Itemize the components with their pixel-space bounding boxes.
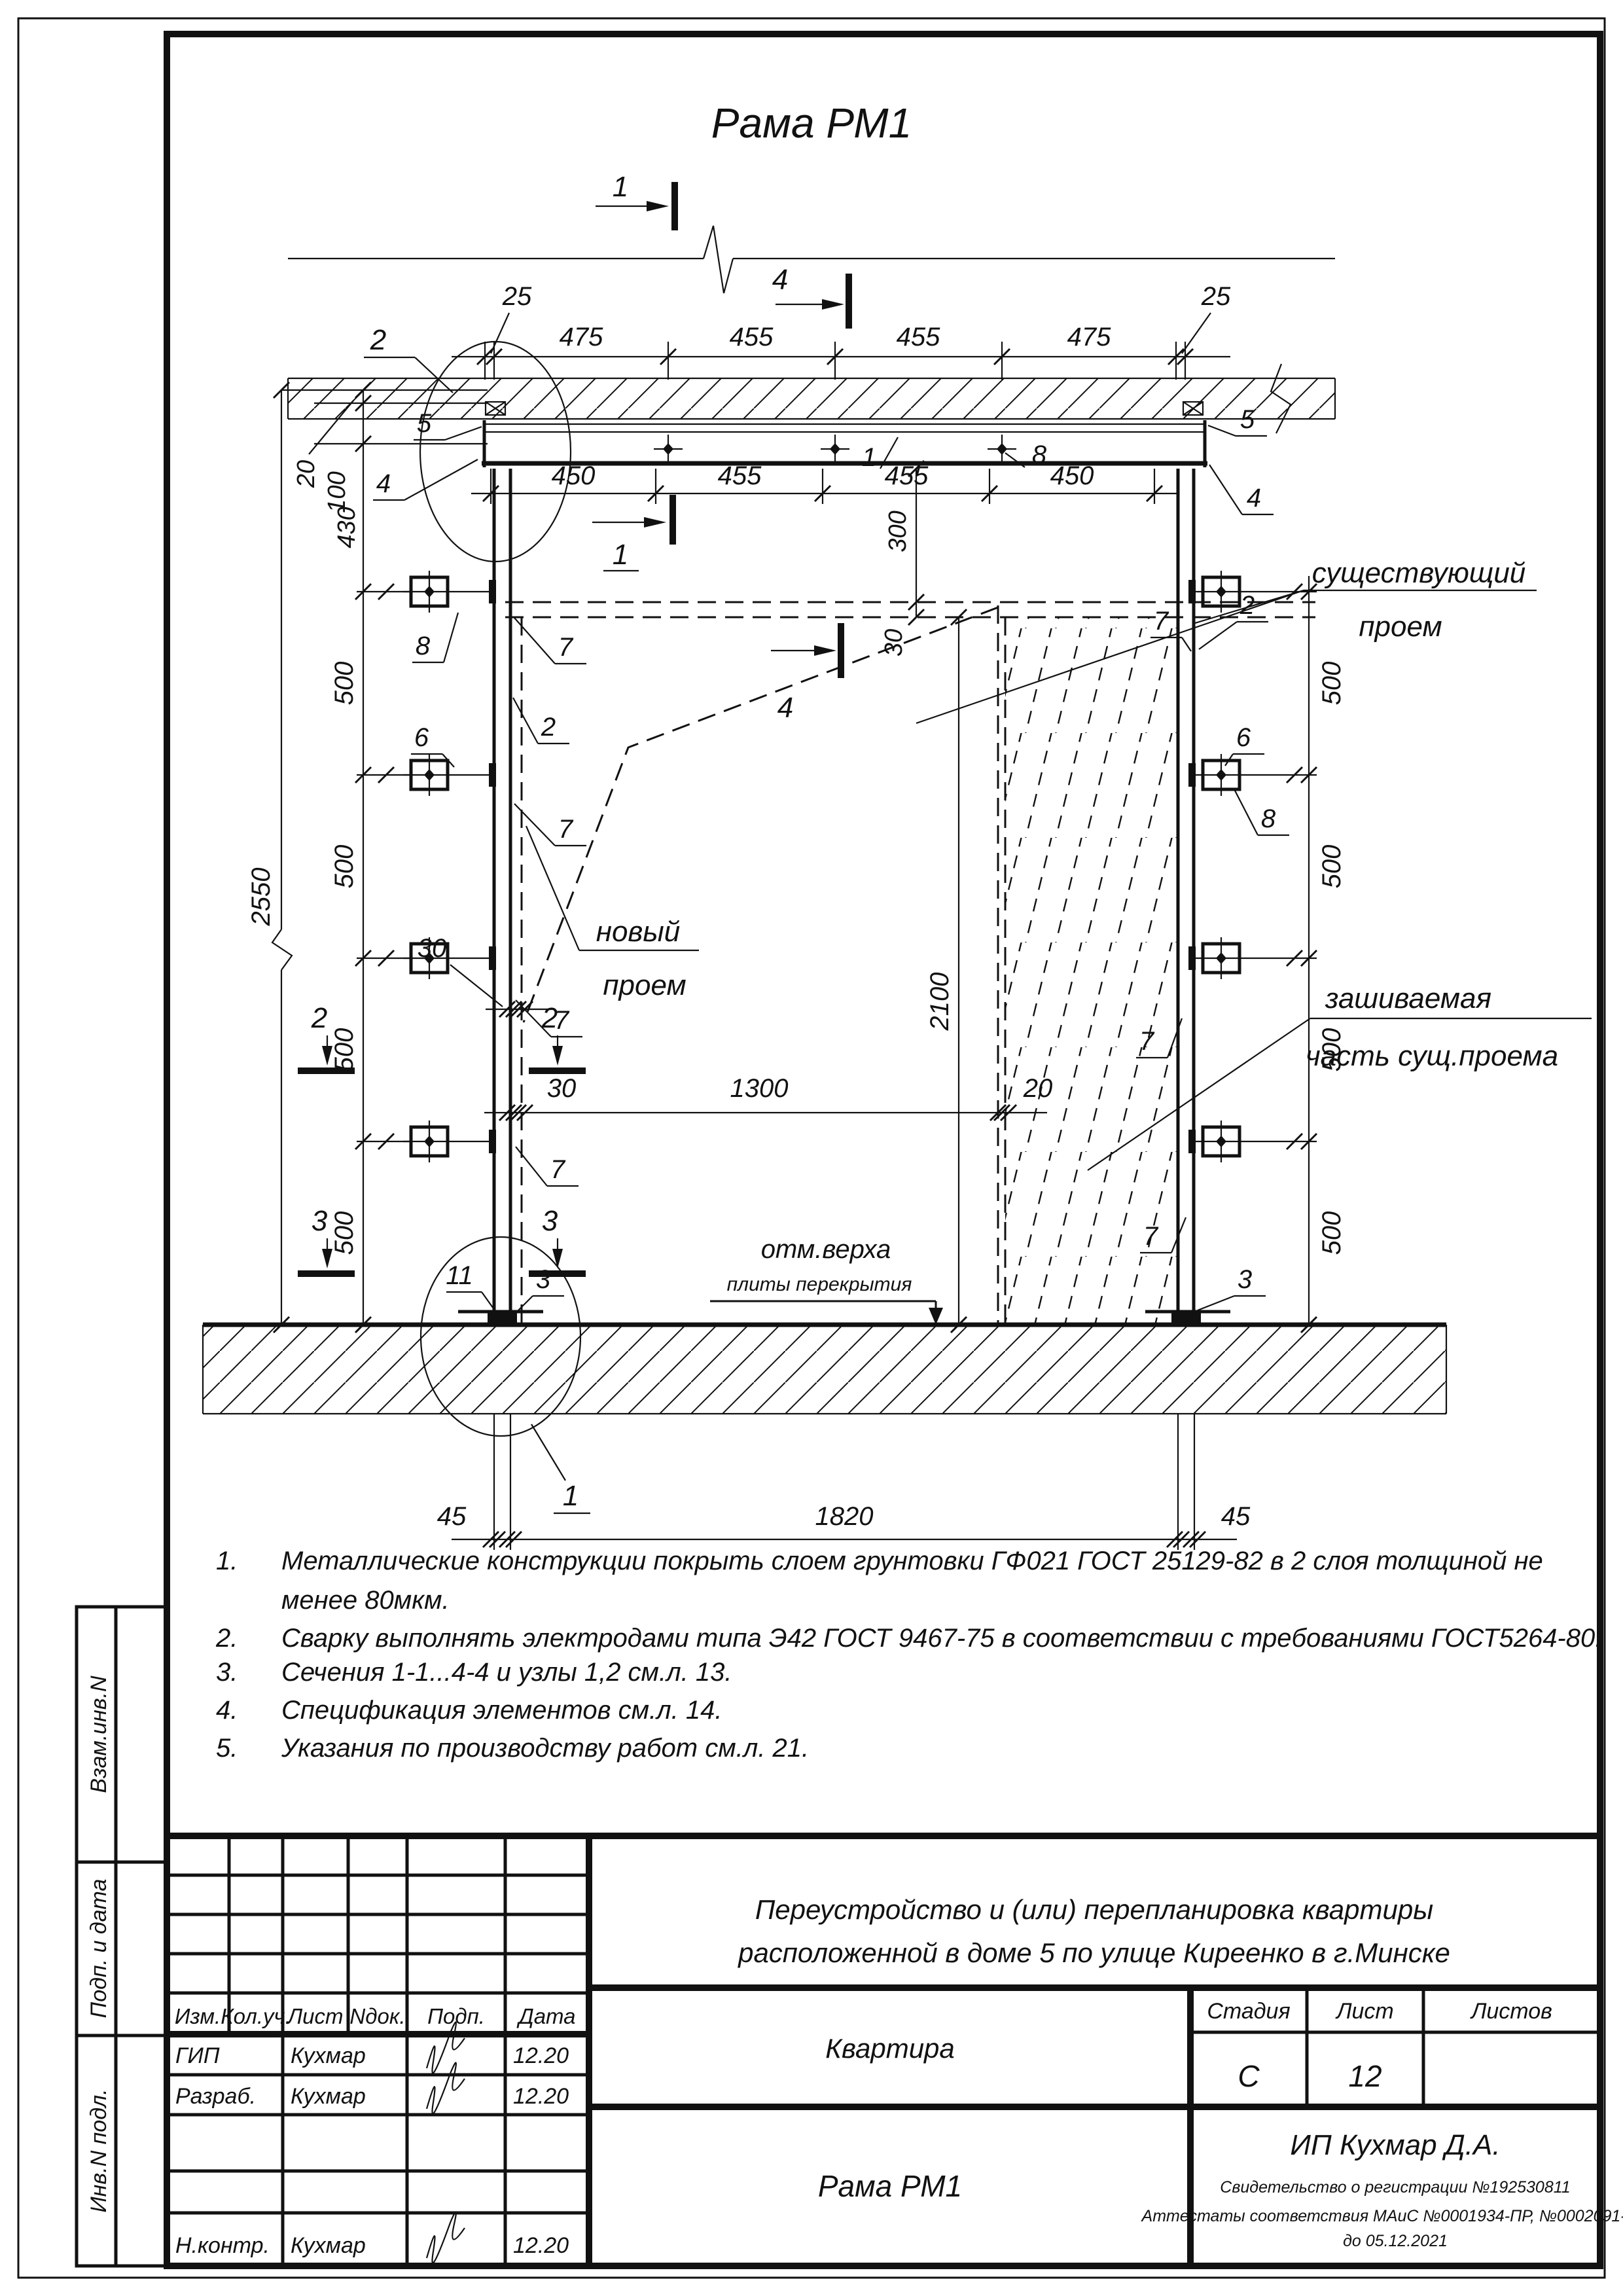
section-4-bottom: 4 (771, 623, 841, 724)
dim-label: 300 (884, 511, 912, 552)
dim-label: 25 (502, 282, 532, 311)
dim-label: 450 (1050, 461, 1094, 490)
sidebar-label-vzam: Взам.инв.N (86, 1676, 111, 1793)
elem-label: 7 (554, 1006, 570, 1035)
dim-top-chain: 25 475 455 455 475 25 (452, 282, 1231, 380)
dim-label: 100 (323, 471, 351, 512)
tb-doc-name: Рама РМ1 (818, 2169, 962, 2203)
elem-label: 8 (1261, 804, 1276, 833)
section-label: 4 (777, 692, 793, 724)
annotation-new: новый проем (526, 826, 699, 1001)
beam-bolts (654, 435, 1016, 463)
tb-stage-label: Стадия (1207, 1999, 1290, 2024)
dim-label: 500 (1317, 845, 1346, 889)
dim-label: 500 (1317, 662, 1346, 706)
dim-label: 475 (560, 323, 603, 351)
annotation-text: отм.верха (761, 1235, 891, 1264)
elem-label: 2 (541, 713, 556, 742)
tb-col-ndok: Nдок. (349, 2004, 405, 2028)
dim-label: 500 (330, 845, 359, 889)
section-1-top: 1 (596, 171, 675, 230)
note-text: Сварку выполнять электродами типа Э42 ГО… (281, 1624, 1602, 1653)
note-num: 4. (216, 1696, 238, 1725)
section-label: 3 (312, 1205, 328, 1237)
section-label: 1 (613, 171, 628, 203)
elem-label: 8 (416, 632, 431, 660)
elem-label: 4 (376, 469, 391, 498)
elem-label: 5 (1240, 405, 1255, 434)
title-block: Изм. Кол.уч. Лист Nдок. Подп. Дата ГИП К… (167, 1836, 1623, 2266)
elem-label: 7 (1154, 607, 1169, 636)
tb-name: Кухмар (291, 2043, 366, 2068)
elem-label: 7 (550, 1155, 566, 1184)
section-1-bottom: 1 (592, 495, 673, 571)
tb-role: ГИП (175, 2043, 220, 2068)
tb-cert2: Аттестаты соответствия МАиС №0001934-ПР,… (1141, 2207, 1623, 2225)
elem-label: 7 (558, 633, 574, 662)
annotation-text: зашиваемая (1325, 982, 1491, 1014)
tb-date: 12.20 (513, 2084, 569, 2109)
node-label: 1 (563, 1480, 579, 1512)
dim-label: 30 (418, 934, 447, 963)
elem-label: 7 (1139, 1027, 1155, 1056)
tb-name: Кухмар (291, 2084, 366, 2109)
note-text: Спецификация элементов см.л. 14. (281, 1696, 722, 1725)
note-num: 2. (215, 1624, 238, 1653)
tb-col-list: Лист (287, 2004, 344, 2028)
signature (427, 2022, 465, 2073)
dim-label: 455 (718, 461, 762, 490)
dim-label: 500 (330, 1028, 359, 1072)
elem-label: 11 (446, 1261, 473, 1290)
tb-col-koluch: Кол.уч. (221, 2004, 291, 2028)
tb-project-line2: расположенной в доме 5 по улице Киреенко… (737, 1937, 1450, 1968)
note-text: Сечения 1-1...4-4 и узлы 1,2 см.л. 13. (281, 1658, 732, 1687)
dim-right-chain: 500 500 500 500 (1301, 576, 1346, 1333)
dim-gap30: 30 (418, 934, 553, 1017)
tb-col-data: Дата (516, 2004, 575, 2028)
tb-role: Н.контр. (175, 2233, 270, 2258)
annotation-text: часть сущ.проема (1306, 1040, 1558, 1072)
sidebar-stamp: Взам.инв.N Подп. и дата Инв.N подл. (77, 1607, 167, 2266)
dim-label: 45 (1221, 1502, 1251, 1531)
annotation-text: плиты перекрытия (727, 1274, 912, 1295)
tb-firm: ИП Кухмар Д.А. (1290, 2129, 1500, 2161)
tb-date: 12.20 (513, 2233, 569, 2258)
dim-bottom-chain: 45 1820 45 (437, 1414, 1251, 1550)
elem-label: 7 (1143, 1222, 1159, 1251)
tb-sheet-value: 12 (1348, 2059, 1382, 2093)
sidebar-label-inv: Инв.N подл. (86, 2089, 111, 2212)
tb-cert3: до 05.12.2021 (1343, 2232, 1448, 2250)
dim-mid-chain: 30 1300 20 (484, 1074, 1052, 1121)
annotation-elevation: отм.верха плиты перекрытия (710, 1235, 943, 1325)
tb-col-izm: Изм. (175, 2004, 221, 2028)
dim-label: 1820 (815, 1502, 874, 1531)
elem-label: 1 (862, 443, 876, 472)
dim-label: 30 (880, 629, 908, 656)
node-label: 2 (370, 324, 386, 356)
closed-part-hatch (1005, 617, 1178, 1325)
signature (427, 2212, 465, 2263)
dim-overall: 2550 (247, 382, 488, 1333)
dim-label: 455 (897, 323, 940, 351)
annotation-text: проем (1359, 611, 1442, 643)
dim-label: 2550 (247, 868, 276, 927)
annotation-text: существующий (1312, 557, 1526, 589)
dim-label: 475 (1067, 323, 1111, 351)
tb-project-line1: Переустройство и (или) перепланировка кв… (755, 1894, 1433, 1925)
dim-label: 1300 (730, 1074, 789, 1103)
dim-label: 450 (552, 461, 596, 490)
tb-date: 12.20 (513, 2043, 569, 2068)
section-label: 1 (613, 539, 628, 571)
tb-stage-value: С (1238, 2059, 1260, 2093)
tb-sheets-label: Листов (1470, 1999, 1552, 2024)
tb-role: Разраб. (175, 2084, 256, 2109)
dim-label: 30 (547, 1074, 577, 1103)
dim-label: 20 (1023, 1074, 1053, 1103)
elem-label: 6 (414, 723, 429, 752)
elem-label: 5 (417, 409, 432, 438)
dim-label: 500 (1317, 1211, 1346, 1255)
note-num: 3. (216, 1658, 238, 1687)
tb-sheet-label: Лист (1335, 1999, 1394, 2024)
note-text: Указания по производству работ см.л. 21. (281, 1734, 809, 1763)
dim-label: 25 (1201, 282, 1231, 311)
section-4-top: 4 (772, 264, 849, 329)
note-num: 1. (216, 1547, 238, 1575)
tb-cert1: Свидетельство о регистрации №192530811 (1220, 2178, 1570, 2197)
annotation-text: проем (603, 969, 686, 1001)
elem-label: 7 (558, 815, 574, 844)
note-num: 5. (216, 1734, 238, 1763)
dim-label: 455 (885, 461, 929, 490)
section-label: 2 (311, 1002, 327, 1034)
dim-label: 455 (730, 323, 774, 351)
drawing-canvas: Взам.инв.N Подп. и дата Инв.N подл. Рама… (0, 0, 1623, 2296)
dim-label: 430 (333, 507, 361, 548)
dim-beam-chain: 450 455 455 450 (471, 461, 1178, 504)
elem-label: 3 (1238, 1265, 1252, 1294)
section-label: 4 (772, 264, 788, 296)
annotation-text: новый (596, 916, 681, 948)
tb-name: Кухмар (291, 2233, 366, 2258)
elem-label: 6 (1236, 723, 1251, 752)
sheet: Взам.инв.N Подп. и дата Инв.N подл. Рама… (0, 0, 1623, 2296)
elem-label: 4 (1247, 484, 1261, 512)
dim-label: 2100 (925, 973, 954, 1031)
dim-left-chain: 20 100 430 500 500 500 500 (293, 382, 488, 1333)
dim-label: 500 (330, 1211, 359, 1255)
dim-label: 20 (293, 460, 320, 488)
dim-label: 45 (437, 1502, 467, 1531)
elem-label: 8 (1032, 440, 1047, 469)
note-text: менее 80мкм. (281, 1586, 450, 1615)
tb-object: Квартира (825, 2033, 955, 2064)
sidebar-label-podp: Подп. и дата (86, 1879, 111, 2018)
note-text: Металлические конструкции покрыть слоем … (281, 1547, 1543, 1575)
elem-label: 3 (536, 1265, 550, 1294)
drawing-title: Рама РМ1 (711, 99, 912, 147)
dim-label: 500 (330, 662, 359, 706)
section-label: 3 (542, 1205, 558, 1237)
notes: 1. Металлические конструкции покрыть сло… (215, 1547, 1602, 1763)
